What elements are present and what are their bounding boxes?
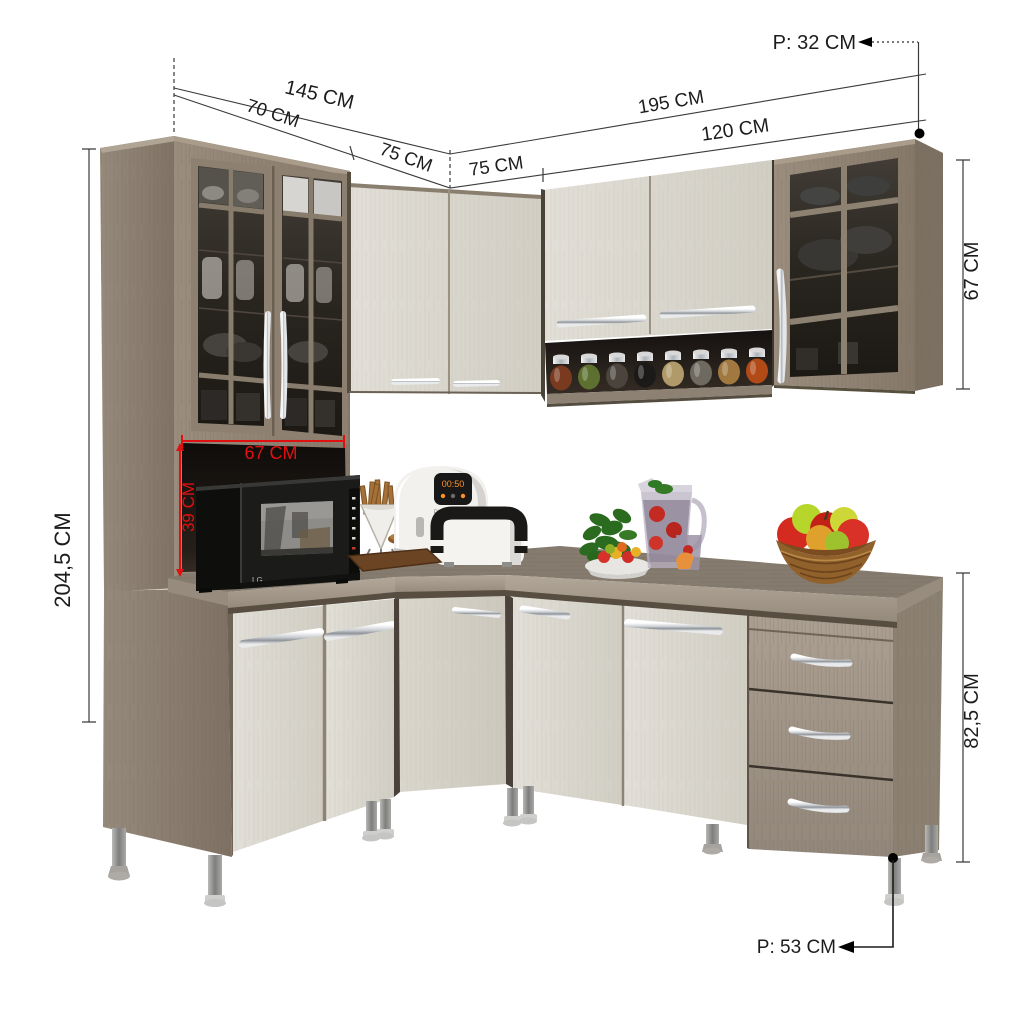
svg-text:67 CM: 67 CM — [961, 242, 983, 301]
svg-text:82,5 CM: 82,5 CM — [961, 673, 983, 749]
svg-text:204,5 CM: 204,5 CM — [50, 512, 75, 607]
svg-text:39 CM: 39 CM — [179, 482, 198, 532]
svg-text:P: 53 CM: P: 53 CM — [757, 937, 836, 958]
svg-text:00:50: 00:50 — [442, 479, 465, 489]
svg-text:P: 32 CM: P: 32 CM — [773, 32, 856, 54]
svg-text:67 CM: 67 CM — [244, 443, 297, 463]
